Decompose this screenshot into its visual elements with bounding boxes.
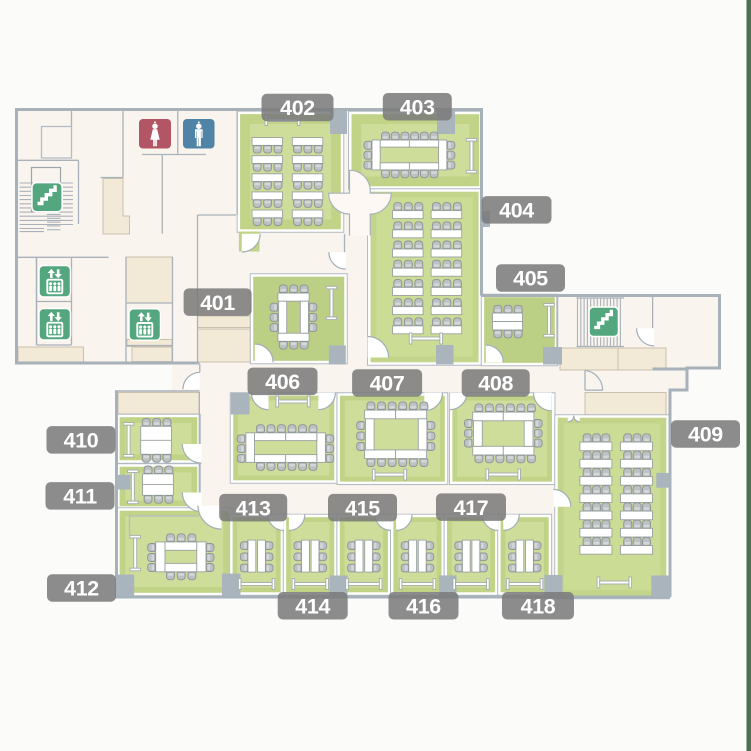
- svg-text:405: 405: [513, 267, 548, 291]
- svg-text:408: 408: [478, 372, 513, 396]
- svg-text:414: 414: [295, 594, 330, 618]
- svg-text:409: 409: [688, 423, 723, 447]
- svg-text:418: 418: [521, 594, 556, 618]
- svg-text:417: 417: [454, 496, 489, 520]
- svg-text:416: 416: [406, 594, 441, 618]
- svg-text:407: 407: [370, 372, 405, 396]
- svg-text:404: 404: [499, 199, 534, 223]
- svg-text:415: 415: [345, 496, 380, 520]
- svg-text:406: 406: [265, 370, 300, 394]
- svg-text:412: 412: [64, 577, 99, 601]
- svg-text:411: 411: [63, 485, 97, 509]
- svg-text:403: 403: [400, 96, 435, 120]
- svg-text:402: 402: [280, 96, 315, 120]
- svg-text:413: 413: [236, 496, 271, 520]
- svg-text:410: 410: [64, 429, 99, 453]
- svg-text:401: 401: [200, 291, 235, 315]
